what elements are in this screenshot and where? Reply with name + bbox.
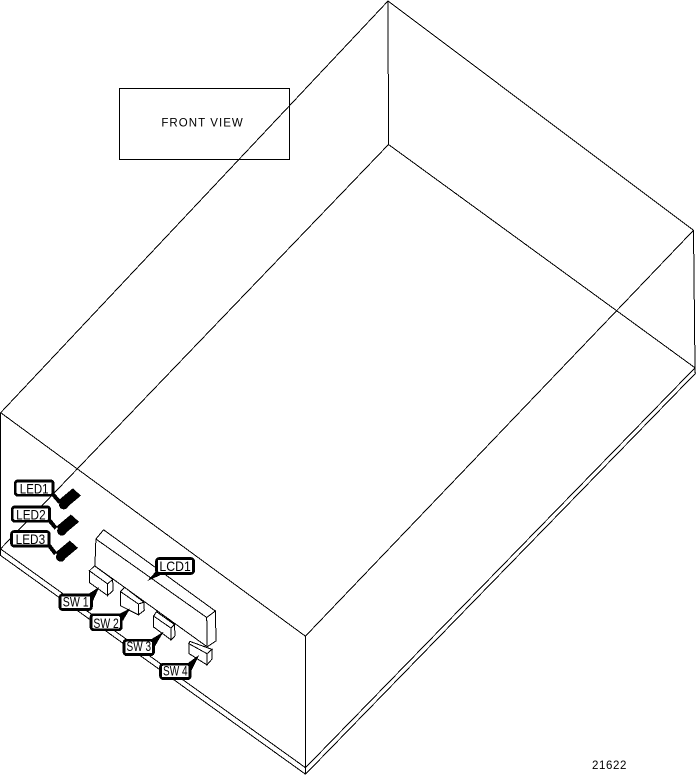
svg-text:SW 3: SW 3	[127, 638, 152, 654]
svg-text:SW 2: SW 2	[93, 615, 119, 631]
svg-text:21622: 21622	[592, 760, 627, 772]
svg-text:SW 1: SW 1	[63, 593, 89, 609]
svg-text:LED3: LED3	[16, 531, 46, 547]
svg-text:LED1: LED1	[20, 481, 49, 497]
svg-text:FRONT VIEW: FRONT VIEW	[161, 118, 243, 130]
svg-text:LCD1: LCD1	[159, 558, 191, 574]
svg-text:SW 4: SW 4	[163, 663, 188, 679]
svg-text:LED2: LED2	[16, 507, 46, 523]
